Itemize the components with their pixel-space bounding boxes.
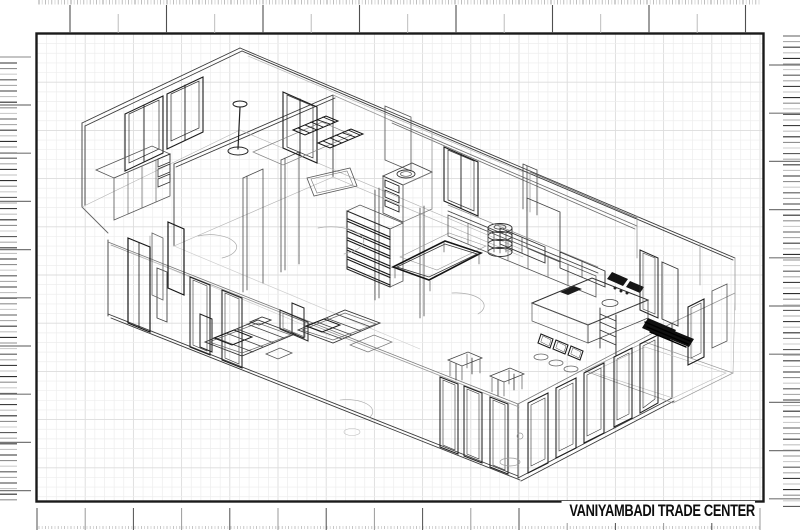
vanity-dresser [383,163,432,222]
project-title: VANIYAMBADI TRADE CENTER [569,502,755,520]
top-ruler [39,0,759,33]
dining-set [534,334,583,372]
blueprint-canvas [0,0,800,530]
outer-walls [82,48,735,481]
floor-lines [82,56,523,349]
building-wireframe [82,48,735,481]
left-ruler [0,57,31,500]
right-ruler [769,36,800,506]
beds [200,303,392,359]
wardrobes [128,222,184,332]
title-block: VANIYAMBADI TRADE CENTER [562,501,755,523]
roof-edges [108,95,735,407]
conference-table [393,233,486,291]
terrace-slab [585,342,733,403]
blueprint-sheet: VANIYAMBADI TRADE CENTER [0,0,800,530]
chairs [448,352,524,396]
